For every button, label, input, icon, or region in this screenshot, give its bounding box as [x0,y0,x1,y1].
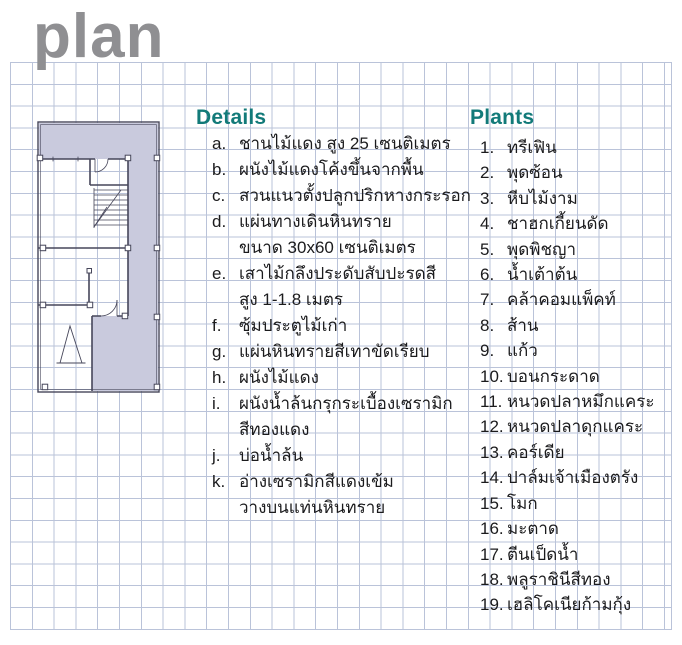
plants-item-label: 6. [480,262,507,287]
plants-item: 9. แก้ว [480,338,680,363]
plants-item-label: 5. [480,237,507,262]
details-item-label: i. [212,391,239,417]
details-item-label: e. [212,261,239,287]
plants-item-label: 15. [480,491,507,516]
details-item: c. สวนแนวตั้งปลูกปริกหางกระรอก [212,183,474,209]
plants-item: 7. คล้าคอมแพ็คท์ [480,287,680,312]
plants-item-text: หนวดปลาดุกแคระ [507,414,680,439]
plants-item: 13. คอร์เดีย [480,440,680,465]
plants-item-text: พลูราชินีสีทอง [507,567,680,592]
plants-item-text: บอนกระดาด [507,364,680,389]
plants-item: 12. หนวดปลาดุกแคระ [480,414,680,439]
plants-item-label: 17. [480,542,507,567]
details-item: h. ผนังไม้แดง [212,365,474,391]
plants-item-text: ส้าน [507,313,680,338]
details-item: k. อ่างเซรามิกสีแดงเข้ม วางบนแท่นหินทราย [212,469,474,521]
plants-item-text: คอร์เดีย [507,440,680,465]
details-item: a. ชานไม้แดง สูง 25 เซนติเมตร [212,131,474,157]
garden-shaded-area [39,123,158,391]
plants-item-text: โมก [507,491,680,516]
details-item: e. เสาไม้กลึงประดับสับปะรดสี สูง 1-1.8 เ… [212,261,474,313]
book-page: plan [0,0,682,645]
plants-item-text: หีบไม้งาม [507,186,680,211]
triangle-symbol [57,326,86,363]
floor-plan-drawing [28,114,173,404]
plants-item-text: ชาฮกเกี้ยนดัด [507,211,680,236]
plants-item: 11. หนวดปลาหมึกแคระ [480,389,680,414]
plants-item-label: 8. [480,313,507,338]
plants-item: 19. เฮลิโคเนียก้ามกุ้ง [480,592,680,617]
plants-item-text: คล้าคอมแพ็คท์ [507,287,680,312]
plants-item-label: 13. [480,440,507,465]
details-item-text: แผ่นทางเดินหินทราย ขนาด 30x60 เซนติเมตร [239,209,474,261]
details-item-label: b. [212,157,239,183]
page-title: plan [33,0,164,73]
details-item-text: ซุ้มประตูไม้เก่า [239,313,474,339]
plants-item: 18. พลูราชินีสีทอง [480,567,680,592]
plants-list: 1. ทรีเฟิน 2. พุดซ้อน 3. หีบไม้งาม 4. ชา… [480,135,680,618]
details-item-text: เสาไม้กลึงประดับสับปะรดสี สูง 1-1.8 เมตร [239,261,474,313]
details-item: j. บ่อน้ำล้น [212,443,474,469]
plants-item-label: 11. [480,389,507,414]
plants-item-text: มะตาด [507,516,680,541]
plants-item-label: 19. [480,592,507,617]
details-item-text: ผนังไม้แดงโค้งขึ้นจากพื้น [239,157,474,183]
details-item-text: ชานไม้แดง สูง 25 เซนติเมตร [239,131,474,157]
plants-item: 4. ชาฮกเกี้ยนดัด [480,211,680,236]
plants-item: 1. ทรีเฟิน [480,135,680,160]
plants-item-text: หนวดปลาหมึกแคระ [507,389,680,414]
details-item: f. ซุ้มประตูไม้เก่า [212,313,474,339]
details-item-label: k. [212,469,239,495]
plants-item: 3. หีบไม้งาม [480,186,680,211]
details-list: a. ชานไม้แดง สูง 25 เซนติเมตร b. ผนังไม้… [212,131,474,521]
plants-item-label: 10. [480,364,507,389]
details-item-text: อ่างเซรามิกสีแดงเข้ม วางบนแท่นหินทราย [239,469,474,521]
details-item-text: บ่อน้ำล้น [239,443,474,469]
plants-item: 17. ตีนเป็ดน้ำ [480,542,680,567]
details-item: g. แผ่นหินทรายสีเทาขัดเรียบ [212,339,474,365]
plants-item: 10. บอนกระดาด [480,364,680,389]
details-item-text: ผนังไม้แดง [239,365,474,391]
plants-item-text: แก้ว [507,338,680,363]
details-item: b. ผนังไม้แดงโค้งขึ้นจากพื้น [212,157,474,183]
door-swings [95,159,117,316]
plants-item: 6. น้ำเต้าต้น [480,262,680,287]
details-item-text: สวนแนวตั้งปลูกปริกหางกระรอก [239,183,474,209]
plants-item-text: เฮลิโคเนียก้ามกุ้ง [507,592,680,617]
details-item-text: ผนังน้ำล้นกรุกระเบื้องเซรามิก สีทองแดง [239,391,474,443]
details-item-label: c. [212,183,239,209]
plants-item-label: 1. [480,135,507,160]
plants-item-text: พุดซ้อน [507,160,680,185]
plants-item: 2. พุดซ้อน [480,160,680,185]
plants-item: 14. ปาล์มเจ้าเมืองตรัง [480,465,680,490]
plants-heading: Plants [470,106,534,130]
details-item-label: f. [212,313,239,339]
plants-item-text: ทรีเฟิน [507,135,680,160]
plants-item-text: น้ำเต้าต้น [507,262,680,287]
plants-item-text: ตีนเป็ดน้ำ [507,542,680,567]
plants-item-label: 16. [480,516,507,541]
plants-item-label: 12. [480,414,507,439]
plants-item-label: 18. [480,567,507,592]
plants-item-label: 14. [480,465,507,490]
details-item: d. แผ่นทางเดินหินทราย ขนาด 30x60 เซนติเม… [212,209,474,261]
plants-item-text: พุดพิชญา [507,237,680,262]
details-item-label: a. [212,131,239,157]
plants-item: 16. มะตาด [480,516,680,541]
plants-item-label: 4. [480,211,507,236]
details-item: i. ผนังน้ำล้นกรุกระเบื้องเซรามิก สีทองแด… [212,391,474,443]
details-heading: Details [196,106,266,130]
plants-item: 8. ส้าน [480,313,680,338]
plants-item-label: 2. [480,160,507,185]
details-item-label: g. [212,339,239,365]
plants-item-label: 9. [480,338,507,363]
plants-item-text: ปาล์มเจ้าเมืองตรัง [507,465,680,490]
plants-item: 5. พุดพิชญา [480,237,680,262]
details-item-label: d. [212,209,239,235]
details-item-text: แผ่นหินทรายสีเทาขัดเรียบ [239,339,474,365]
plants-item-label: 3. [480,186,507,211]
plants-item-label: 7. [480,287,507,312]
details-item-label: h. [212,365,239,391]
staircase [94,188,128,228]
plants-item: 15. โมก [480,491,680,516]
details-item-label: j. [212,443,239,469]
